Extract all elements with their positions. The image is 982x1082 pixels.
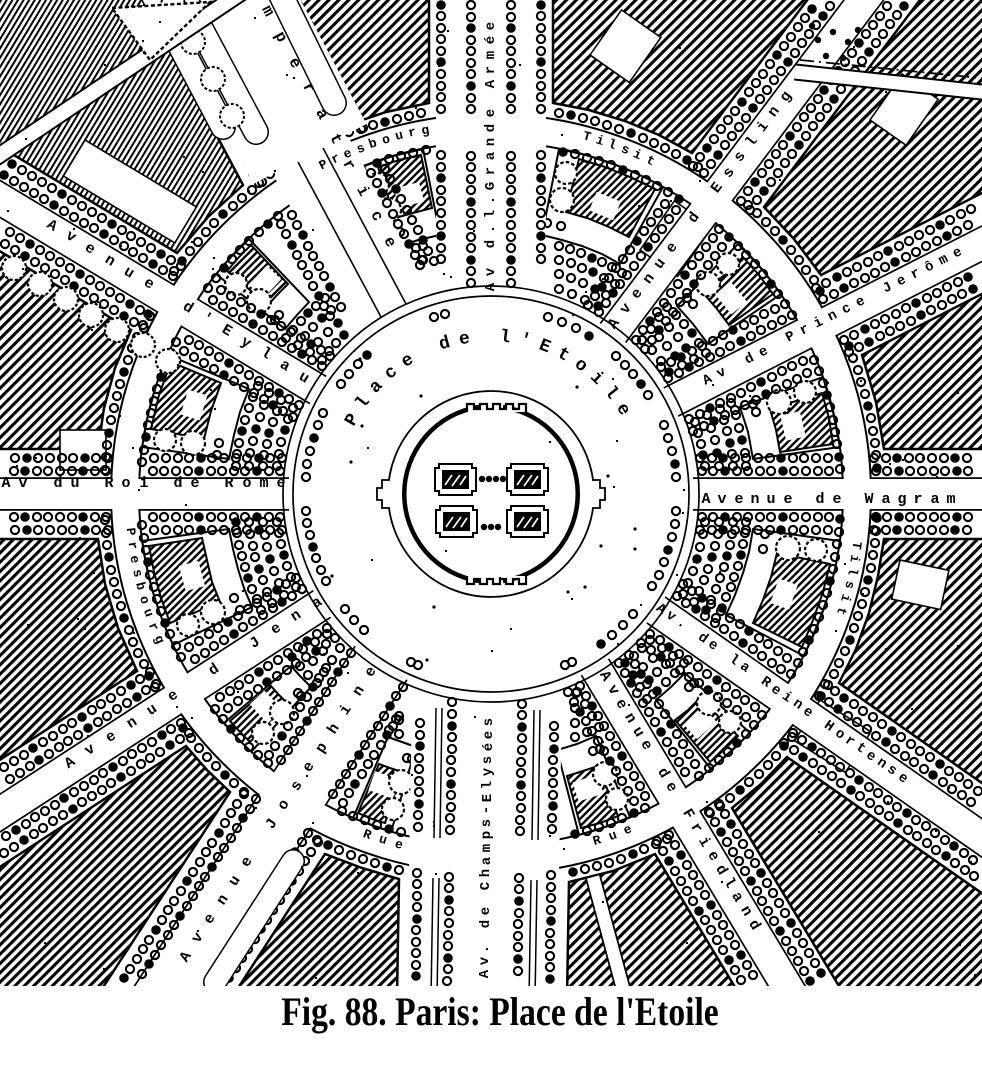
svg-text:Fig. 88. Paris: Place de l'Eto: Fig. 88. Paris: Place de l'Etoile <box>281 989 718 1033</box>
svg-text:d: d <box>483 124 499 132</box>
svg-text:m: m <box>946 491 955 508</box>
svg-text:e: e <box>483 22 499 30</box>
svg-text:A: A <box>701 491 710 508</box>
svg-text:W: W <box>864 491 873 508</box>
svg-text:e: e <box>783 491 792 508</box>
svg-text:v: v <box>483 267 499 276</box>
svg-text:A: A <box>1 475 10 492</box>
svg-text:i: i <box>139 475 148 492</box>
svg-text:a: a <box>479 856 495 865</box>
svg-text:m: m <box>483 51 499 59</box>
svg-text:A: A <box>483 282 499 291</box>
svg-text:v: v <box>18 475 27 492</box>
svg-text:é: é <box>481 743 497 751</box>
svg-text:m: m <box>259 475 268 492</box>
svg-text:R: R <box>224 475 233 492</box>
svg-text:r: r <box>913 491 922 508</box>
svg-text:e: e <box>734 491 743 508</box>
svg-text:C: C <box>478 881 494 890</box>
svg-text:.: . <box>483 196 499 204</box>
svg-text:m: m <box>479 844 495 852</box>
svg-text:-: - <box>479 806 495 814</box>
svg-text:a: a <box>483 151 499 160</box>
svg-text:d: d <box>173 475 182 492</box>
svg-text:r: r <box>483 167 499 175</box>
svg-text:l: l <box>480 781 496 789</box>
svg-text:u: u <box>766 491 775 508</box>
svg-text:.: . <box>477 945 493 953</box>
svg-text:e: e <box>832 491 841 508</box>
svg-text:.: . <box>483 225 499 233</box>
svg-text:E: E <box>480 794 496 802</box>
svg-text:r: r <box>483 66 499 74</box>
svg-text:l: l <box>483 210 499 218</box>
svg-text:e: e <box>478 907 494 915</box>
svg-text:d: d <box>483 240 499 248</box>
svg-text:s: s <box>481 718 497 726</box>
svg-text:e: e <box>481 731 497 739</box>
svg-text:d: d <box>815 491 824 508</box>
svg-text:v: v <box>717 491 726 508</box>
svg-text:d: d <box>478 920 494 928</box>
svg-text:A: A <box>477 969 493 978</box>
svg-text:é: é <box>483 36 499 44</box>
svg-text:a: a <box>881 491 890 508</box>
svg-text:n: n <box>750 491 759 508</box>
svg-text:u: u <box>70 475 79 492</box>
svg-text:R: R <box>104 475 113 492</box>
svg-text:g: g <box>897 491 906 508</box>
svg-text:h: h <box>478 869 494 877</box>
svg-text:a: a <box>930 491 939 508</box>
svg-text:s: s <box>479 819 495 827</box>
svg-text:e: e <box>190 475 199 492</box>
svg-text:A: A <box>483 79 499 88</box>
svg-text:s: s <box>480 756 496 764</box>
svg-text:G: G <box>483 182 499 190</box>
svg-text:n: n <box>483 138 499 146</box>
svg-text:o: o <box>242 475 251 492</box>
svg-text:y: y <box>480 767 496 776</box>
svg-text:p: p <box>479 831 495 839</box>
svg-text:e: e <box>483 109 499 117</box>
svg-text:d: d <box>53 475 62 492</box>
svg-text:e: e <box>276 475 285 492</box>
svg-text:v: v <box>477 956 493 965</box>
svg-text:o: o <box>121 475 130 492</box>
